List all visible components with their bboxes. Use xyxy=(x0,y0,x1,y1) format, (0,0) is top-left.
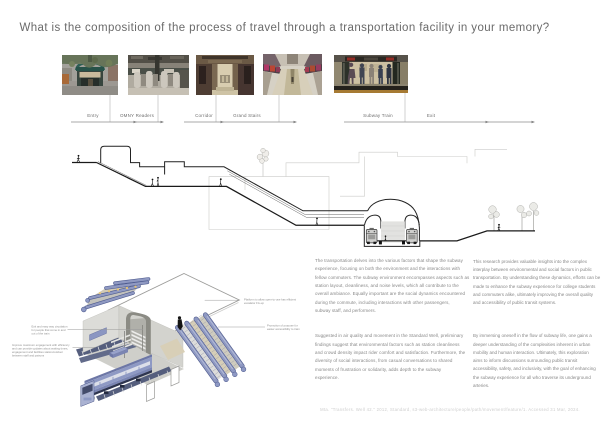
svg-text:escalator Fix-up: escalator Fix-up xyxy=(244,301,264,305)
svg-text:between staff and patrons: between staff and patrons xyxy=(12,354,45,358)
svg-text:easier accessibility to train: easier accessibility to train xyxy=(267,327,300,331)
svg-text:out of the train: out of the train xyxy=(32,332,50,336)
